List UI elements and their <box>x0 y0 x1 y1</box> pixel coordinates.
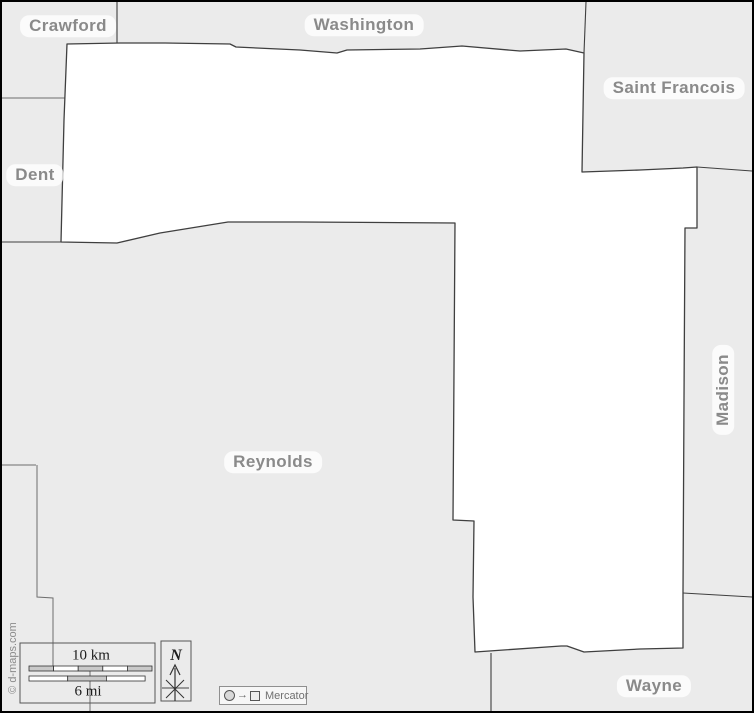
county-label-dent: Dent <box>6 164 63 186</box>
boundary-saintfrancois-madison <box>697 167 752 171</box>
projection-label: Mercator <box>265 690 308 702</box>
county-label-reynolds: Reynolds <box>224 451 322 473</box>
county-map: Crawford Washington Saint Francois Dent … <box>0 0 754 713</box>
globe-circle-icon <box>224 690 235 701</box>
compass-north-label: N <box>170 647 182 665</box>
copyright-credit: © d-maps.com <box>7 622 19 694</box>
scale-bar-km <box>29 666 152 671</box>
subject-county-shape <box>61 43 697 652</box>
scale-km-label: 10 km <box>72 648 110 665</box>
flat-map-square-icon <box>250 691 260 701</box>
map-canvas <box>2 2 752 711</box>
county-label-crawford: Crawford <box>20 15 116 37</box>
boundary-madison-wayne <box>683 593 752 597</box>
north-arrow-icon <box>162 665 189 701</box>
projection-box: → Mercator <box>219 686 307 705</box>
arrow-right-icon: → <box>237 690 248 701</box>
county-label-madison: Madison <box>712 345 734 435</box>
scale-bar-mi <box>29 676 145 681</box>
scale-mi-label: 6 mi <box>74 684 101 701</box>
boundary-reynolds-shannon-carter <box>37 465 90 711</box>
boundary-washington-saintfrancois <box>584 2 586 53</box>
county-label-saint-francois: Saint Francois <box>604 77 745 99</box>
county-label-wayne: Wayne <box>617 675 691 697</box>
county-label-washington: Washington <box>305 14 424 36</box>
